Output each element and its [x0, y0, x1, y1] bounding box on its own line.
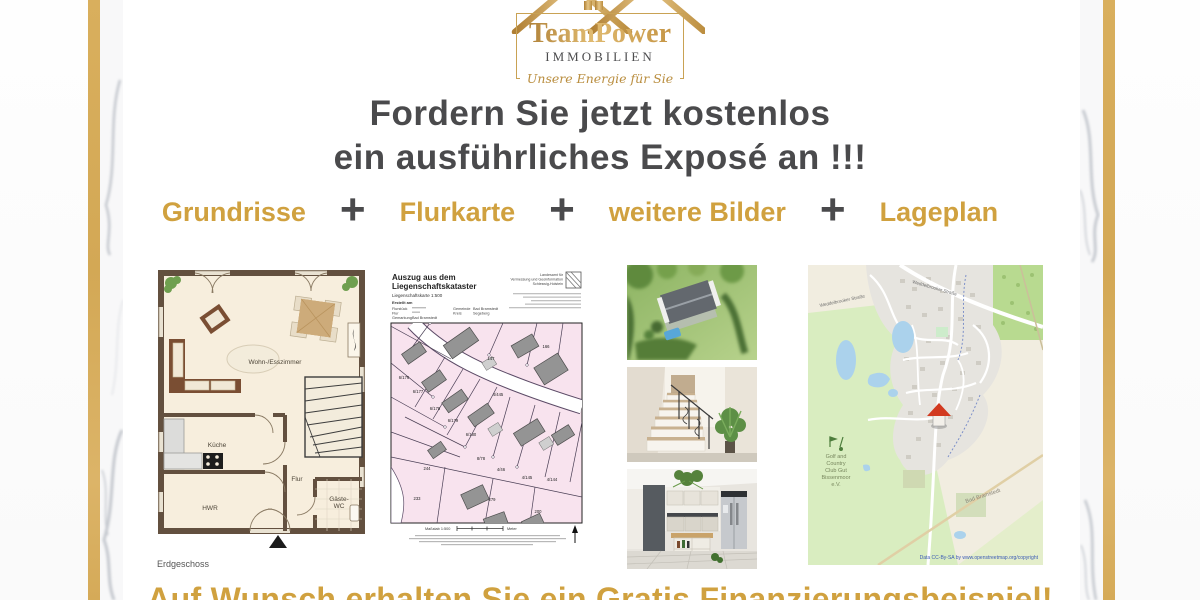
room-label-hall: Flur: [291, 476, 303, 483]
cadastral-title-line2: Liegenschaftskataster: [392, 282, 476, 291]
parcel-number: 4/46: [497, 467, 506, 472]
plus-icon: +: [549, 190, 575, 230]
cadastral-graphic: Auszug aus dem Liegenschaftskataster Lie…: [385, 267, 588, 560]
parcel-number: 6/176: [399, 375, 410, 380]
photo-kitchen: [627, 469, 757, 569]
cadastral-scale-line: Liegenschaftskarte 1:500: [392, 293, 443, 298]
parcel-number: 6/179: [448, 418, 459, 423]
logo-subtitle: IMMOBILIEN: [517, 49, 683, 64]
golf-label: Club Gut: [825, 468, 847, 474]
parcel-number: 4/445: [493, 392, 504, 397]
plus-icon: +: [820, 190, 846, 230]
parcel-number: 8/78: [477, 456, 486, 461]
photo-staircase: [627, 367, 757, 462]
logo-brand-name: TeamPower: [517, 19, 683, 49]
agency-line2: Vermessung und Geoinformation: [510, 278, 563, 282]
golf-label: e.V.: [831, 482, 841, 488]
cadastral-meter-label: Meter: [507, 527, 517, 531]
footer-offer-text: Auf Wunsch erhalten Sie ein Gratis Finan…: [0, 581, 1200, 600]
parcel-number: 233: [414, 496, 422, 501]
logo: TeamPower IMMOBILIEN Unsere Energie für …: [516, 13, 684, 79]
photo-aerial-house: [627, 265, 757, 360]
meta-gemarkung-label: Gemarkung: [392, 316, 412, 320]
parcel-number: 6/178: [430, 406, 441, 411]
feature-grundrisse: Grundrisse: [162, 197, 306, 228]
parcel-number: 6/177: [413, 389, 424, 394]
parcel-number: 166: [543, 344, 551, 349]
plus-icon: +: [340, 190, 366, 230]
right-marble-veins-graphic: [1080, 0, 1103, 600]
cadastral-title-line1: Auszug aus dem: [392, 273, 456, 282]
right-gold-stripe: [1103, 0, 1115, 600]
floorplan-graphic: Wohn-/Esszimmer Küche Flur HWR Gäste- WC: [155, 267, 368, 557]
parcel-number: 147: [488, 356, 496, 361]
room-label-utility: HWR: [202, 505, 218, 512]
meta-flurstueck-label: Flurstück: [392, 307, 408, 311]
golf-label: Bissenmoor: [821, 475, 850, 481]
meta-gemeinde-value: Bad Bramstedt: [473, 307, 499, 311]
agency-line3: Schleswig-Holstein: [533, 282, 563, 286]
entrance-arrow-icon: [269, 535, 287, 548]
room-label-wc-line1: Gäste-: [329, 496, 349, 503]
left-marble-veins-graphic: [100, 0, 123, 600]
meta-flur-label: Flur: [392, 312, 399, 316]
meta-kreis-label: Kreis: [453, 312, 462, 316]
left-marble-strip: [100, 0, 123, 600]
map-copyright: Data CC-By-SA by www.openstreetmap.org/c…: [920, 555, 1039, 561]
agency-line1: Landesamt für: [540, 273, 564, 277]
parcel-number: 6/180: [466, 432, 477, 437]
meta-kreis-value: Segeberg: [473, 312, 489, 316]
golf-label: Country: [826, 461, 846, 467]
headline-line1: Fordern Sie jetzt kostenlos: [0, 92, 1200, 136]
cadastral-scale-label: Maßstab 1:500: [425, 527, 450, 531]
feature-flurkarte: Flurkarte: [400, 197, 516, 228]
headline-line2: ein ausführliches Exposé an !!!: [0, 136, 1200, 180]
left-outer-margin: [0, 0, 88, 600]
location-map-image: Golf and Country Club Gut Bissenmoor e.V…: [808, 265, 1043, 565]
feature-lageplan: Lageplan: [880, 197, 999, 228]
logo-tagline-text: Unsere Energie für Sie: [520, 71, 680, 86]
parcel-number: 4/144: [547, 477, 558, 482]
floorplan-caption: Erdgeschoss: [157, 559, 209, 569]
golf-label: Golf and: [826, 454, 847, 460]
meta-gemarkung-value: Bad Bramstedt: [412, 316, 438, 320]
meta-gemeinde-label: Gemeinde: [453, 307, 471, 311]
parcel-number: 279: [489, 497, 497, 502]
room-label-kitchen: Küche: [208, 442, 227, 449]
parcel-number: 4/145: [522, 475, 533, 480]
right-outer-margin: [1115, 0, 1200, 600]
features-row: Grundrisse + Flurkarte + weitere Bilder …: [0, 194, 1180, 230]
room-label-wc-line2: WC: [334, 503, 345, 510]
right-marble-strip: [1080, 0, 1103, 600]
flyer-page: TeamPower IMMOBILIEN Unsere Energie für …: [0, 0, 1200, 600]
floorplan-image: Wohn-/Esszimmer Küche Flur HWR Gäste- WC…: [155, 267, 368, 572]
cadastral-created: Erstellt am: [392, 300, 413, 305]
location-map-graphic: Golf and Country Club Gut Bissenmoor e.V…: [808, 265, 1043, 565]
parcel-number: 244: [424, 466, 432, 471]
parcel-number: 200: [535, 509, 543, 514]
logo-tagline: Unsere Energie für Sie: [517, 71, 683, 86]
room-label-living: Wohn-/Esszimmer: [249, 359, 303, 366]
feature-weitere-bilder: weitere Bilder: [609, 197, 786, 228]
left-gold-stripe: [88, 0, 100, 600]
photos-column: [627, 265, 757, 569]
cadastral-map-image: Auszug aus dem Liegenschaftskataster Lie…: [385, 267, 588, 560]
headline: Fordern Sie jetzt kostenlos ein ausführl…: [0, 92, 1200, 180]
